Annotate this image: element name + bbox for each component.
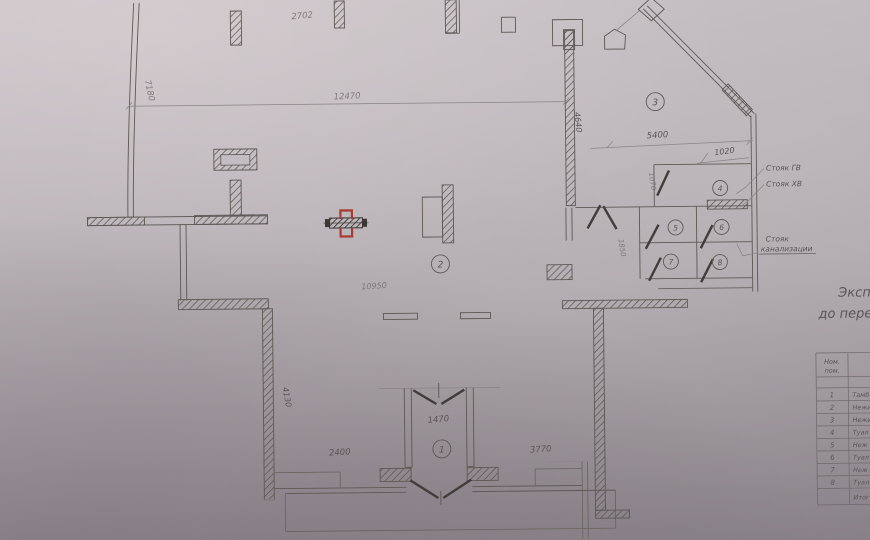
right-step-line (588, 461, 589, 538)
marked-column-bar (329, 218, 362, 228)
inner-wall (180, 225, 181, 301)
room-number: 5 (673, 223, 678, 232)
dim-1020: 1020 (714, 146, 735, 158)
door-leaf (441, 390, 464, 404)
door-leaf (701, 225, 713, 248)
partition (645, 278, 752, 279)
vestibule-top-line (378, 387, 500, 388)
dim-1070: 1070 (647, 172, 658, 191)
opening-bar (460, 312, 490, 318)
riser-sewer-label: Стояк (766, 234, 790, 243)
leader-line (737, 244, 759, 256)
room-number: 6 (719, 223, 724, 232)
pilaster-column (230, 180, 241, 216)
table-row-name: Туал (853, 428, 869, 436)
left-wing (87, 149, 286, 502)
door-sill-hatch (380, 468, 411, 481)
table-grid (816, 387, 870, 388)
table-row-name: Туал (853, 453, 869, 461)
table-row-name: Туал (853, 478, 869, 486)
table-grid (817, 413, 870, 414)
table-title-line1: Эксп (837, 285, 870, 300)
partition-hatch-bar (707, 200, 747, 209)
label-underline (759, 254, 816, 255)
column-detail-hatch (442, 185, 454, 243)
vent-shaft-inner (221, 154, 250, 165)
room-number: 3 (652, 98, 658, 108)
center-columns (323, 185, 454, 244)
table-grid (817, 504, 870, 505)
left-cross-wall-hatch (87, 217, 144, 226)
table-footer: Итог (853, 493, 870, 501)
bottom-wall-outer (285, 492, 406, 493)
top-square-shaft (501, 17, 515, 32)
bottom-wall-outer (472, 490, 615, 491)
partition (658, 288, 752, 289)
table-row-num: 1 (830, 391, 835, 399)
vestibule-wall (411, 388, 412, 467)
dim-line (697, 158, 749, 164)
table-row-num: 7 (830, 466, 835, 474)
top-column (230, 11, 241, 45)
riser-hv-label: Стояк ХВ (766, 179, 802, 188)
top-column (445, 0, 456, 33)
dim-2400: 2400 (329, 447, 351, 458)
partition (696, 206, 697, 278)
table-grid (816, 400, 870, 401)
right-lower-wall-foot (596, 510, 630, 518)
riser-gv-label: Стояк ГВ (766, 163, 801, 172)
column-detail-outline (422, 197, 442, 237)
connector-line (615, 11, 639, 31)
floor-plan-drawing: 2702 7180 12470 4640 5400 1020 1070 1850… (0, 0, 870, 540)
room-number: 2 (438, 260, 444, 270)
room-markers: 1 2 3 4 5 6 7 8 (429, 92, 731, 458)
room-number: 4 (718, 184, 723, 193)
dim-5400: 5400 (646, 130, 668, 141)
table-row-name: Тамб (852, 391, 869, 399)
leader-line (736, 169, 764, 194)
table-header: пом. (824, 367, 839, 375)
bottom-walls (271, 206, 689, 540)
door-leaf (410, 480, 438, 498)
explication-table: Эксп до пере Ном. пом. 1 Тамб 2 Нежи 3 Н… (815, 285, 870, 505)
vestibule-wall (466, 388, 467, 467)
table-grid (817, 425, 870, 426)
room-number: 1 (439, 445, 445, 455)
partition (640, 242, 752, 243)
table-row-name: Нежи (853, 416, 870, 424)
table-grid (816, 376, 870, 377)
table-grid (817, 475, 870, 476)
red-mark-bracket (341, 228, 353, 237)
door-leaf (701, 259, 713, 282)
riser-sewer-label: канализации (761, 244, 813, 254)
right-wall (756, 160, 757, 292)
right-step-line (582, 461, 583, 538)
diagonal-wall-hatch (722, 84, 752, 116)
table-row-num: 8 (830, 479, 835, 487)
dim-line (129, 102, 566, 107)
room-number: 7 (668, 258, 673, 267)
table-grid (817, 438, 870, 439)
vestibule-wall (404, 388, 405, 467)
right-wall (751, 160, 752, 292)
building-outline (126, 0, 667, 217)
table-grid (816, 353, 818, 505)
table-row-name: Неж (853, 441, 868, 449)
table-row-num: 3 (830, 416, 835, 424)
dim-7180: 7180 (142, 79, 156, 102)
door-leaf (587, 205, 600, 228)
step-wall-hatch (178, 299, 268, 310)
dim-12470: 12470 (333, 91, 360, 102)
inner-wall (186, 225, 187, 301)
dim-2702: 2702 (291, 10, 314, 22)
table-grid (817, 450, 870, 451)
table-row-num: 5 (830, 441, 835, 449)
bottom-wall (472, 485, 582, 486)
door-leaf (649, 258, 661, 281)
room-number: 8 (717, 258, 722, 267)
dim-3770: 3770 (530, 444, 552, 455)
dim-10950: 10950 (361, 281, 387, 292)
porch-edge (286, 528, 616, 531)
door-leaf (657, 171, 669, 196)
top-column (334, 1, 344, 28)
right-lower-wall-hatch (593, 308, 605, 510)
table-title-line2: до пере (817, 306, 870, 322)
dim-1850: 1850 (616, 238, 627, 257)
table-grid (817, 488, 870, 489)
dim-1470: 1470 (427, 414, 450, 426)
door-leaf (443, 480, 471, 498)
door-sill-hatch (467, 467, 498, 480)
floor-plan-photo: 2702 7180 12470 4640 5400 1020 1070 1850… (0, 0, 870, 540)
table-grid (816, 352, 870, 353)
corridor-column (547, 265, 572, 280)
table-grid (848, 353, 850, 505)
curved-left-wall-inner (131, 3, 141, 217)
table-row-num: 2 (830, 404, 835, 412)
partition (654, 164, 751, 165)
door-leaf (646, 225, 659, 249)
partition (639, 207, 640, 279)
table-row-name: Нежи (852, 403, 870, 411)
opening-bar (383, 313, 417, 319)
step-line (275, 472, 340, 473)
dim-4130: 4130 (280, 386, 293, 408)
vestibule-wall (473, 388, 474, 467)
table-row-num: 6 (830, 454, 835, 462)
table-row-name: Неж (853, 466, 868, 474)
dimension-annotations: 2702 7180 12470 4640 5400 1020 1070 1850… (125, 6, 756, 461)
pentagon-shaft (604, 29, 625, 49)
table-header: Ном. (824, 358, 840, 366)
right-lower-wall-hatch (562, 299, 687, 308)
table-row-num: 4 (830, 429, 835, 437)
table-grid (817, 463, 870, 464)
sanitary-block (575, 160, 758, 294)
left-lower-wall-hatch (262, 309, 274, 500)
door-leaf (413, 390, 436, 404)
door-leaf (603, 206, 616, 229)
marked-column-nub (362, 219, 367, 227)
marked-column-nub (325, 219, 330, 227)
